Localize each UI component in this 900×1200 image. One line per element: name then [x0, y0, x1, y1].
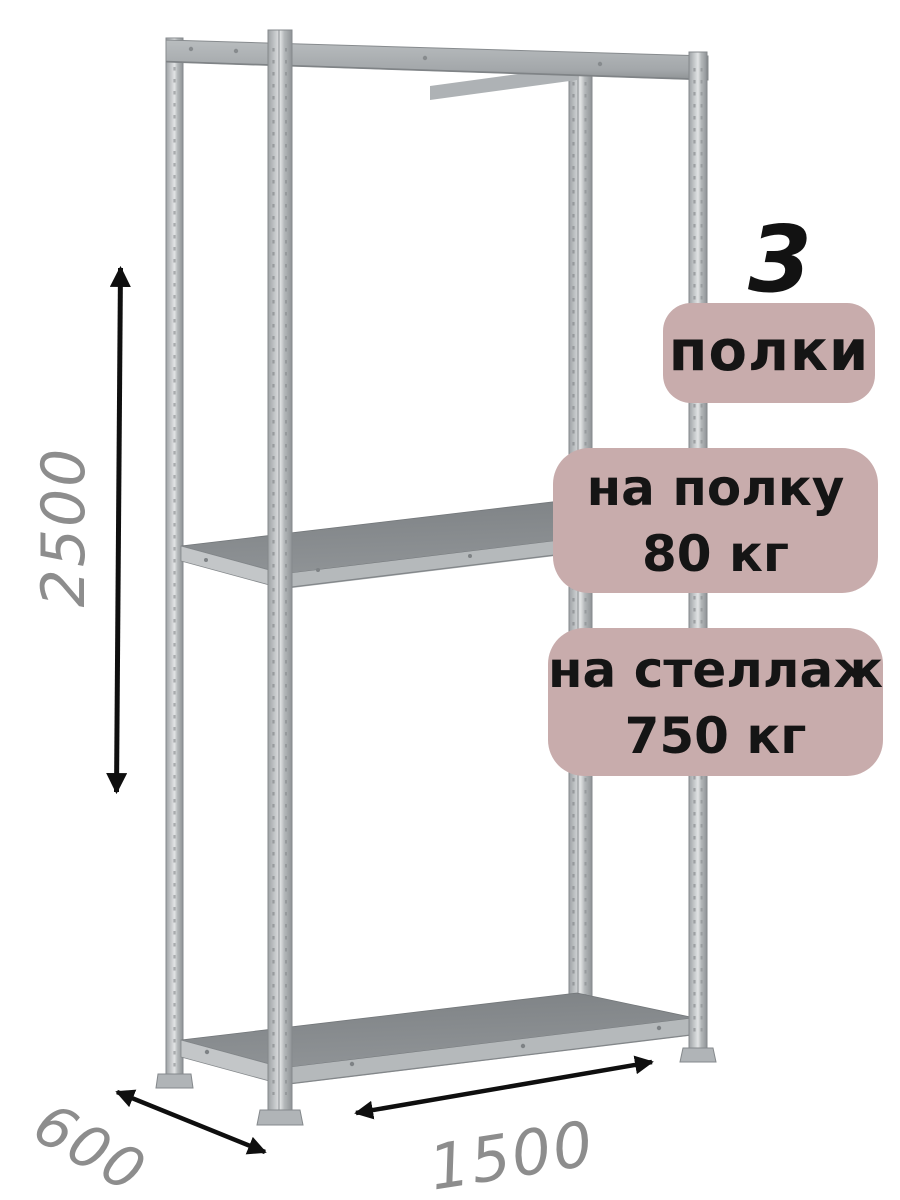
shelf-count-number: 3: [700, 210, 860, 310]
per-rack-load-line2: 750 кг: [548, 703, 883, 769]
product-image: 3 полки на полку 80 кг на стеллаж 750 кг…: [0, 0, 900, 1200]
per-rack-load-line1: на стеллаж: [548, 637, 883, 703]
top-shelf: [166, 40, 708, 100]
shelf-count-badge: полки: [663, 303, 875, 403]
per-shelf-load-line2: 80 кг: [553, 521, 878, 587]
rack-graphic: [0, 0, 900, 1200]
per-rack-load-badge: на стеллаж 750 кг: [548, 628, 883, 776]
height-dimension-label: 2500: [28, 407, 100, 647]
per-shelf-load-badge: на полку 80 кг: [553, 448, 878, 593]
shelf-count-label: полки: [669, 319, 869, 384]
height-arrow: [117, 268, 121, 792]
per-shelf-load-line1: на полку: [553, 455, 878, 521]
bottom-shelf: [181, 993, 695, 1085]
